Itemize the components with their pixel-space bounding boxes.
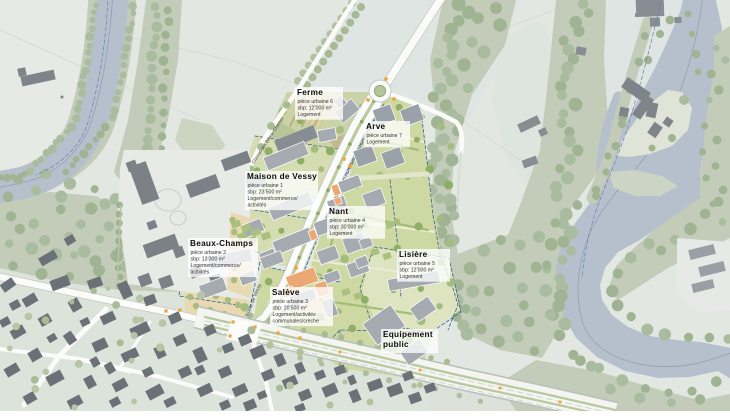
svg-text:Logement: Logement xyxy=(330,231,354,237)
svg-text:sbp: 12’000 m²: sbp: 12’000 m² xyxy=(298,106,333,112)
svg-text:Arve: Arve xyxy=(366,122,386,131)
svg-text:pièce urbaine 3: pièce urbaine 3 xyxy=(273,299,309,305)
svg-text:communales/crèche: communales/crèche xyxy=(273,318,320,324)
svg-text:pièce urbaine 1: pièce urbaine 1 xyxy=(248,183,284,189)
svg-text:Logement/commerce/: Logement/commerce/ xyxy=(248,196,299,202)
svg-text:Nant: Nant xyxy=(329,207,348,216)
svg-text:pièce urbaine 7: pièce urbaine 7 xyxy=(367,133,403,139)
svg-text:sbp: 23’500 m²: sbp: 23’500 m² xyxy=(248,190,283,196)
svg-text:Logement/commerce/: Logement/commerce/ xyxy=(191,263,242,269)
svg-text:Lisière: Lisière xyxy=(399,250,428,259)
svg-text:public: public xyxy=(383,340,409,349)
svg-text:Maison de Vessy: Maison de Vessy xyxy=(247,172,317,181)
svg-text:sbp: 13’300 m²: sbp: 13’300 m² xyxy=(191,257,226,263)
svg-text:Beaux-Champs: Beaux-Champs xyxy=(190,239,253,248)
svg-text:pièce urbaine 5: pièce urbaine 5 xyxy=(400,261,436,267)
svg-text:pièce urbaine 2: pièce urbaine 2 xyxy=(191,250,227,256)
svg-text:Logement: Logement xyxy=(400,274,424,280)
svg-text:pièce urbaine 6: pièce urbaine 6 xyxy=(298,99,334,105)
svg-text:Logement: Logement xyxy=(298,112,322,118)
svg-text:Ferme: Ferme xyxy=(297,88,323,97)
svg-text:sbp: 20’500 m²: sbp: 20’500 m² xyxy=(273,306,308,312)
svg-text:activités: activités xyxy=(191,269,210,275)
svg-text:sbp: 12’000 m²: sbp: 12’000 m² xyxy=(400,268,435,274)
svg-text:Salève: Salève xyxy=(272,288,300,297)
svg-text:pièce urbaine 4: pièce urbaine 4 xyxy=(330,218,366,224)
svg-text:Equipement: Equipement xyxy=(383,330,433,339)
svg-text:sbp: 30’000 m²: sbp: 30’000 m² xyxy=(330,225,365,231)
svg-text:Logement/activités: Logement/activités xyxy=(273,312,317,318)
svg-text:Logement: Logement xyxy=(367,140,391,146)
svg-text:activités: activités xyxy=(248,202,267,208)
